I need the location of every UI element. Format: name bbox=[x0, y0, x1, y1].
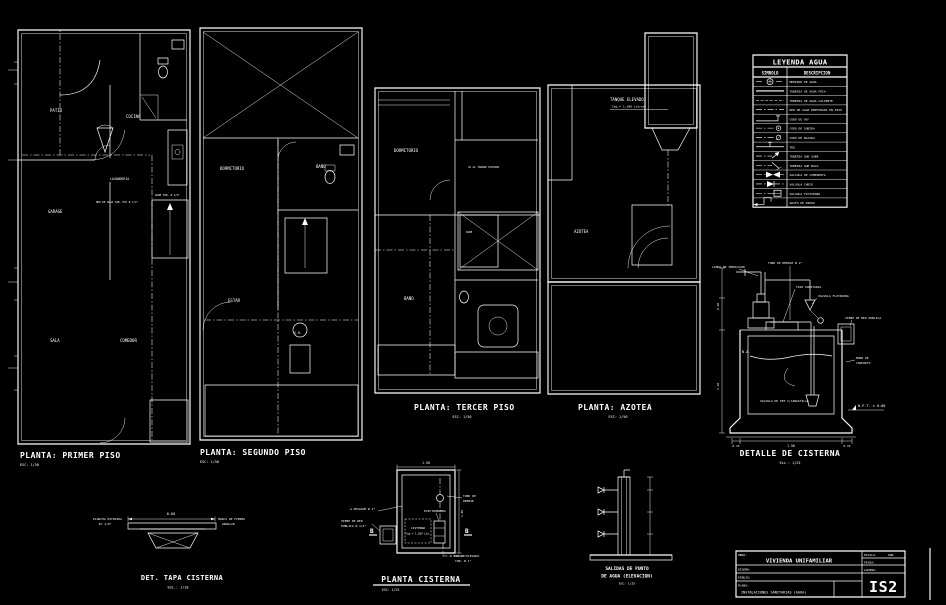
legend-desc: CODO DE BAJADA bbox=[790, 136, 815, 140]
room-label-cocina: COCINA bbox=[126, 114, 141, 119]
tb-fecha-label: FECHA: bbox=[864, 561, 875, 565]
tb-dibujo-label: DIBUJO: bbox=[738, 576, 751, 580]
note-va-tanque: VA AL TANQUE ELEVADO bbox=[468, 165, 500, 169]
detail-salidas-agua: SALIDAS DE PUNTO DE AGUA (ELEVACION) ESC… bbox=[590, 470, 672, 586]
tb-diseno-label: DISEÑO: bbox=[738, 567, 751, 572]
label-muro1: MURO DE bbox=[856, 356, 869, 360]
plan2-title: PLANTA: SEGUNDO PISO bbox=[200, 448, 306, 457]
legend-symbol-elbow-up bbox=[756, 126, 781, 131]
detalle-cisterna-title: DETALLE DE CISTERNA bbox=[740, 449, 841, 458]
tb-obra: VIVIENDA UNIFAMILIAR bbox=[766, 559, 833, 565]
detail-planta-cisterna: 1.50 1.85 CISTERNA Cap.= 1,500 Lts. ELEC… bbox=[341, 461, 479, 592]
note-tanque-elevado: TANQUE ELEVADO bbox=[610, 97, 644, 102]
plan3-scale: ESC: 1/50 bbox=[453, 415, 472, 419]
detail-tapa-cisterna: 0.60 PLANCHA ESTRIADA E= 1/8" MARCO DE F… bbox=[93, 512, 245, 590]
note-sube-tub: SUBE TUB. Ø 3/4" bbox=[155, 192, 180, 197]
detalle-cisterna-scale: Esc.: 1/25 bbox=[779, 461, 800, 465]
legend-col-desc: DESCRIPCION bbox=[804, 71, 831, 76]
label-rebose: TUBO DE REBOSE Ø 2" bbox=[768, 260, 803, 265]
pc-bomba: ELECTROBOMBA bbox=[424, 509, 446, 513]
title-block: OBRA: VIVIENDA UNIFAMILIAR DISEÑO: DIBUJ… bbox=[736, 548, 930, 600]
room-label-lavanderia: LAVANDERIA bbox=[110, 177, 129, 181]
label-impulsion: LINEA DE IMPULSION bbox=[712, 265, 745, 269]
pc-rebose1: TUBO DE bbox=[463, 494, 476, 498]
dim-h2: 1.20 bbox=[716, 383, 720, 390]
legend-symbol-faucet bbox=[753, 198, 771, 207]
plan-segundo-piso: DORMITORIO BAÑO ESTAR S.H. PLANTA: SEGUN… bbox=[200, 28, 362, 464]
tapa-label-left1: PLANCHA ESTRIADA bbox=[93, 517, 122, 521]
tb-plano-label: PLANO: bbox=[738, 584, 749, 588]
pc-title: PLANTA CISTERNA bbox=[381, 575, 460, 584]
plan4-scale: ESC: 1/50 bbox=[609, 415, 628, 419]
drawing-canvas: PATIO COCINA LAVANDERIA GARAGE SALA COME… bbox=[0, 0, 946, 605]
legend-symbol-check-valve bbox=[756, 181, 784, 187]
pc-scale: ESC: 1/25 bbox=[382, 588, 399, 592]
legend-symbol-gate-valve bbox=[756, 172, 784, 178]
legend-desc: VALVULA DE COMPUERTA bbox=[790, 173, 826, 177]
plan1-scale: ESC: 1/50 bbox=[20, 463, 39, 467]
dim-w3: 0.15 bbox=[843, 444, 850, 448]
room-label-bano2: BAÑO bbox=[316, 164, 326, 169]
note-tanque-cap: Cap.= 1,100 Litros bbox=[612, 105, 645, 109]
tb-obra-label: OBRA: bbox=[738, 553, 747, 557]
legend-symbol-float-valve bbox=[756, 190, 781, 196]
legend-desc: RED DE AGUA EMPOTRADA EN PISO bbox=[790, 108, 843, 112]
room-label-comedor: COMEDOR bbox=[120, 338, 137, 343]
legend-symbol-pipe-down bbox=[756, 162, 782, 170]
label-flotadora: VALVULA FLOTADORA bbox=[818, 294, 849, 298]
tb-plano: INSTALACIONES SANITARIAS (AGUA) bbox=[741, 591, 806, 595]
label-tapa-sanitaria: TAPA SANITARIA bbox=[796, 285, 821, 289]
pc-name: CISTERNA bbox=[411, 526, 426, 530]
detail-cisterna: 0.60 1.20 0.15 1.50 0.15 LINEA DE IMPULS… bbox=[712, 260, 885, 465]
pc-tanque2: TUB. Ø 1" bbox=[455, 558, 471, 563]
pc-section-b-right: B bbox=[465, 528, 469, 535]
tb-lamina: IS2 bbox=[869, 578, 898, 596]
pc-cap: Cap.= 1,500 Lts. bbox=[406, 532, 431, 536]
dim-w2: 1.50 bbox=[787, 444, 795, 448]
pc-dim-side: 1.85 bbox=[460, 510, 464, 517]
tb-escala: IND. bbox=[888, 553, 895, 557]
legend-desc: VALVULA FLOTADORA bbox=[790, 192, 821, 196]
plan3-title: PLANTA: TERCER PISO bbox=[414, 403, 515, 412]
legend-agua: LEYENDA AGUA SIMBOLO DESCRIPCION MEDIDOR… bbox=[753, 55, 847, 207]
legend-desc: CODO DE 90° bbox=[790, 117, 810, 121]
pc-dim-top: 1.50 bbox=[422, 461, 430, 465]
tapa-label-right1: MARCO DE FIERRO bbox=[218, 517, 245, 521]
room-label-estar: ESTAR bbox=[228, 298, 241, 303]
label-na: N.A. bbox=[742, 350, 750, 354]
room-label-dormitorio3: DORMITORIO bbox=[394, 148, 419, 153]
legend-desc: VALVULA CHECK bbox=[790, 183, 814, 187]
note-red-agua: RED DE AGUA TUB. PVC Ø 1/2" bbox=[96, 199, 139, 204]
room-label-bano3: BAÑO bbox=[404, 296, 414, 301]
room-label-azotea: AZOTEA bbox=[574, 229, 589, 234]
legend-col-symbol: SIMBOLO bbox=[762, 71, 779, 76]
room-label-sala: SALA bbox=[50, 338, 60, 343]
legend-symbol-elbow-90 bbox=[756, 116, 780, 121]
tapa-label-right2: ANGULAR bbox=[222, 522, 235, 526]
tapa-title: DET. TAPA CISTERNA bbox=[141, 574, 224, 582]
plan-tercer-piso: DORMITORIO BAÑO VA AL TANQUE ELEVADO SUB… bbox=[375, 88, 540, 419]
label-npt: N.P.T. ± 0.00 bbox=[858, 404, 885, 408]
plan-azotea: TANQUE ELEVADO Cap.= 1,100 Litros AZOTEA… bbox=[548, 33, 700, 419]
room-label-dormitorio2: DORMITORIO bbox=[220, 166, 245, 171]
room-label-sh: S.H. bbox=[294, 331, 302, 335]
legend-desc: TUBERIA QUE SUBE bbox=[790, 155, 819, 159]
dim-w1: 0.15 bbox=[732, 444, 739, 448]
tb-escala-label: ESCALA: bbox=[864, 553, 877, 557]
label-valvula-pie: VALVULA DE PIE C/CANASTILLA bbox=[760, 399, 809, 403]
legend-desc: TUBERIA QUE BAJA bbox=[790, 164, 819, 168]
legend-symbol-tee bbox=[756, 142, 784, 147]
legend-title: LEYENDA AGUA bbox=[773, 59, 828, 67]
label-viene-red: VIENE DE RED PUBLICA bbox=[845, 316, 881, 320]
plan-primer-piso: PATIO COCINA LAVANDERIA GARAGE SALA COME… bbox=[8, 30, 190, 467]
legend-desc: MEDIDOR DE AGUA bbox=[790, 80, 817, 84]
cad-sheet: PATIO COCINA LAVANDERIA GARAGE SALA COME… bbox=[0, 0, 946, 605]
room-label-garage: GARAGE bbox=[48, 209, 63, 214]
pc-viene1: VIENE DE RED bbox=[341, 519, 363, 523]
pc-section-b-left: B bbox=[370, 528, 374, 535]
salidas-scale: ESC: 1/25 bbox=[619, 582, 635, 586]
plan2-scale: ESC: 1/50 bbox=[200, 460, 219, 464]
legend-symbol-water-meter bbox=[756, 79, 784, 85]
legend-desc: CODO DE SUBIDA bbox=[790, 127, 815, 131]
pc-viene2: PUBLICA Ø 3/4" bbox=[341, 523, 366, 528]
legend-desc: TUBERIA DE AGUA FRIA bbox=[790, 90, 826, 94]
pc-rebose2: REBOSE bbox=[463, 499, 474, 503]
tb-lamina-label: LAMINA: bbox=[864, 568, 877, 572]
legend-desc: GRIFO DE RIEGO bbox=[790, 201, 815, 205]
dim-h1: 0.60 bbox=[716, 303, 720, 310]
pc-tanque1: A TANQUE ELEVADO bbox=[450, 554, 479, 558]
salidas-title1: SALIDAS DE PUNTO bbox=[605, 566, 649, 572]
tapa-dim: 0.60 bbox=[167, 512, 175, 516]
note-sube3: SUBE bbox=[466, 230, 473, 234]
legend-symbol-elbow-down bbox=[756, 135, 781, 140]
plan4-title: PLANTA: AZOTEA bbox=[578, 403, 652, 412]
tapa-scale: ESC.: 1/10 bbox=[167, 586, 188, 590]
room-label-patio: PATIO bbox=[50, 108, 63, 113]
salidas-title2: DE AGUA (ELEVACION) bbox=[601, 574, 652, 580]
legend-desc: TUBERIA DE AGUA CALIENTE bbox=[790, 99, 834, 103]
pc-desague: A DESAGUE Ø 2" bbox=[350, 506, 375, 511]
tapa-label-left2: E= 1/8" bbox=[99, 522, 112, 526]
legend-symbol-pipe-up bbox=[756, 152, 779, 158]
legend-desc: TEE bbox=[790, 145, 796, 149]
plan1-title: PLANTA: PRIMER PISO bbox=[20, 451, 121, 460]
label-muro2: CONCRETO bbox=[856, 361, 871, 365]
